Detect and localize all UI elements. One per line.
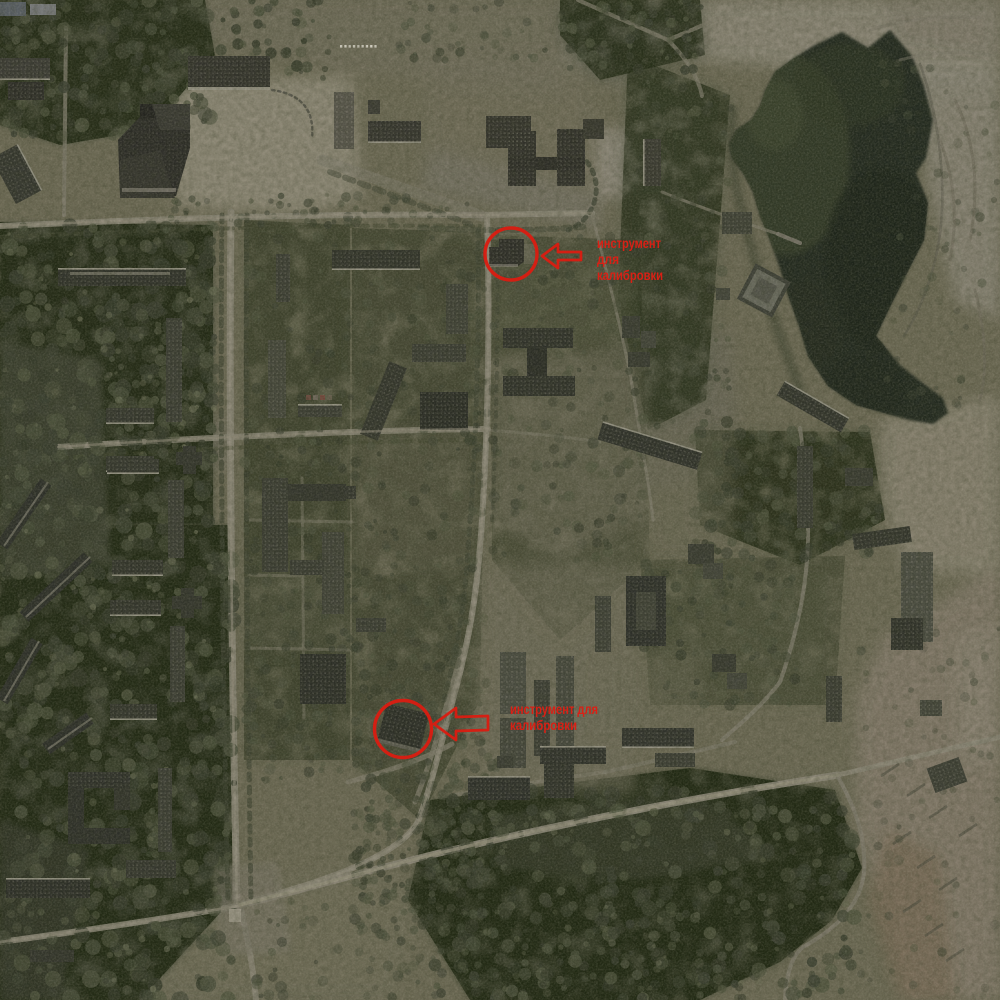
svg-text:инструмент для: инструмент для [510,701,598,717]
svg-text:инструмент: инструмент [597,235,661,251]
svg-text:для: для [597,251,619,267]
svg-text:калибровки: калибровки [597,267,663,283]
svg-text:калибровки: калибровки [510,717,577,733]
